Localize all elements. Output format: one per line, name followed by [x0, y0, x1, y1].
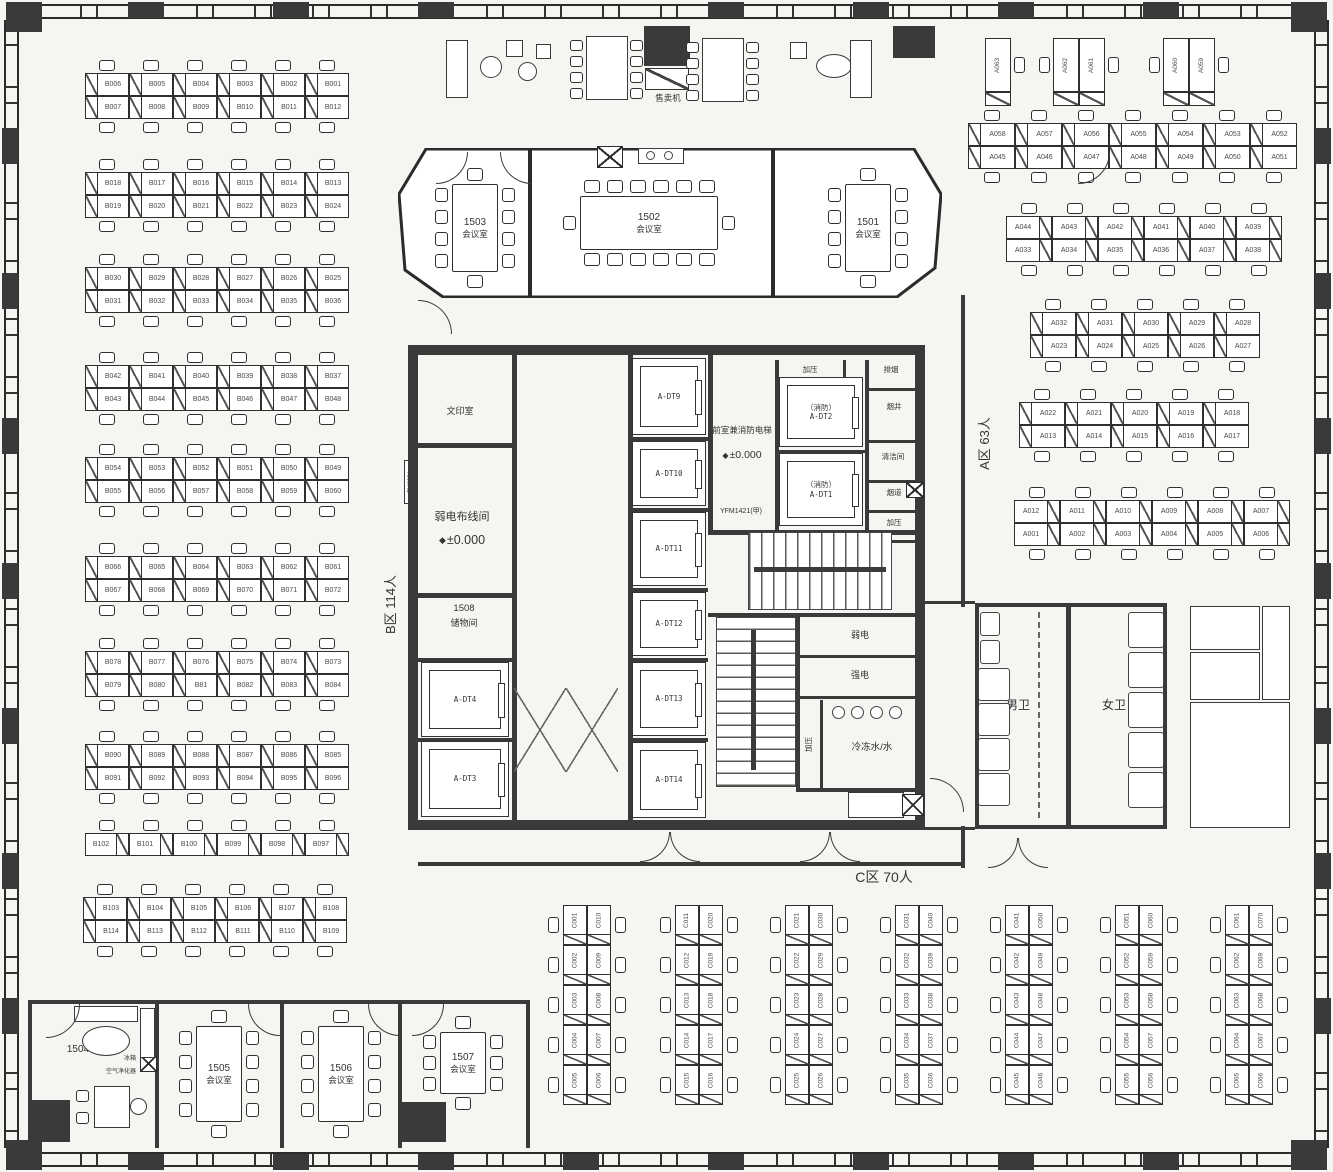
desk: A050	[1203, 146, 1250, 169]
chair	[1167, 487, 1183, 498]
desk: B063	[217, 556, 261, 579]
desk-label: B005	[142, 74, 172, 95]
pipe-circle	[870, 706, 883, 719]
desk-label: A059	[1199, 57, 1206, 72]
desk-label: B082	[230, 675, 260, 696]
desk: A021	[1065, 402, 1111, 425]
desk-cabinet-hatch	[1116, 934, 1138, 944]
desk-cabinet-hatch	[216, 898, 228, 919]
meeting-room-number: 1501	[857, 217, 879, 228]
desk: B076	[173, 651, 217, 674]
smoke-exhaust-box	[848, 792, 904, 818]
elevator-id: A-DT1	[810, 490, 833, 499]
desk-cabinet-hatch	[306, 74, 318, 95]
chair	[1277, 957, 1288, 973]
desk-cabinet-hatch	[130, 196, 142, 217]
chair	[231, 543, 247, 554]
desk: B101	[129, 833, 173, 856]
desk-cabinet-hatch	[676, 1054, 698, 1064]
desk-cabinet-hatch	[1116, 974, 1138, 984]
desk-cabinet-hatch	[810, 1094, 832, 1104]
desk-label: B091	[98, 768, 128, 789]
chair	[947, 957, 958, 973]
column-block	[2, 273, 18, 309]
desk-label: C023	[793, 992, 800, 1008]
desk: C045	[1005, 1065, 1029, 1105]
chair	[187, 414, 203, 425]
desk: B056	[129, 480, 173, 503]
chair	[319, 60, 335, 71]
chair	[630, 180, 646, 193]
desk-cabinet-hatch	[160, 834, 172, 855]
wall	[800, 696, 918, 699]
chair	[99, 506, 115, 517]
zone-b-label: B区 114人	[378, 548, 400, 660]
elevator-id: A-DT14	[655, 775, 682, 784]
desk-label: B086	[274, 745, 304, 766]
desk-label: B023	[274, 196, 304, 217]
desk-label: C041	[1013, 912, 1020, 928]
desk-label: B066	[98, 557, 128, 578]
desk-cabinet-hatch	[896, 974, 918, 984]
desk: B035	[261, 290, 305, 313]
desk-cabinet-hatch	[1158, 426, 1170, 447]
desk-cabinet-hatch	[1085, 217, 1097, 238]
wall	[865, 440, 922, 443]
desk: C057	[1139, 1025, 1163, 1065]
desk-label: C014	[683, 1032, 690, 1048]
hatch-box	[902, 794, 924, 816]
desk: C068	[1249, 985, 1273, 1025]
desk-cabinet-hatch	[1053, 92, 1079, 106]
hatch-box	[906, 482, 924, 498]
desk-cabinet-hatch	[306, 768, 318, 789]
chair	[727, 1077, 738, 1093]
column-block	[853, 1154, 889, 1170]
desk: C063	[1225, 985, 1249, 1025]
desk-cabinet-hatch	[260, 898, 272, 919]
desk-cabinet-hatch	[262, 580, 274, 601]
desk-cabinet-hatch	[174, 97, 186, 118]
desk-cabinet-hatch	[1139, 501, 1151, 522]
desk-label: B040	[186, 366, 216, 387]
desk-label: B067	[98, 580, 128, 601]
desk-cabinet-hatch	[306, 268, 318, 289]
chair	[231, 352, 247, 363]
chilled-water-label: 冷冻水/水	[828, 740, 916, 756]
desk-cabinet-hatch	[306, 196, 318, 217]
desk: C036	[919, 1065, 943, 1105]
chair	[467, 168, 483, 181]
column-block	[1315, 998, 1331, 1034]
elevator-counterweight	[695, 610, 702, 639]
door-arc	[418, 300, 452, 334]
stall-partition	[1038, 612, 1040, 818]
elevator-cab: A-DT10	[640, 449, 698, 498]
chair	[99, 316, 115, 327]
chair	[319, 221, 335, 232]
chair	[615, 997, 626, 1013]
stair-handrail	[751, 630, 756, 770]
desk-label: B022	[230, 196, 260, 217]
chair	[1039, 57, 1050, 73]
chair	[231, 820, 247, 831]
desk-label: B018	[98, 173, 128, 194]
chair	[231, 638, 247, 649]
desk-label: C009	[595, 952, 602, 968]
desk-label: B032	[142, 291, 172, 312]
chair	[1078, 110, 1094, 121]
chair	[99, 793, 115, 804]
chair	[660, 1077, 671, 1093]
pipe-circle	[832, 706, 845, 719]
desk: A039	[1236, 216, 1282, 239]
desk-cabinet-hatch	[1204, 403, 1216, 424]
desk-cabinet-hatch	[128, 898, 140, 919]
desk: B018	[85, 172, 129, 195]
desk-cabinet-hatch	[588, 974, 610, 984]
desk: A022	[1019, 402, 1065, 425]
desk-cabinet-hatch	[174, 366, 186, 387]
chair	[1149, 57, 1160, 73]
chair	[231, 731, 247, 742]
desk-label: A046	[1028, 147, 1061, 168]
chair	[179, 1055, 192, 1069]
wall	[418, 862, 965, 866]
desk: C018	[699, 985, 723, 1025]
chair	[99, 700, 115, 711]
desk-label: C068	[1257, 992, 1264, 1008]
desk-label: C057	[1147, 1032, 1154, 1048]
desk-label: A029	[1181, 313, 1213, 334]
desk-label: C070	[1257, 912, 1264, 928]
chair	[368, 1031, 381, 1045]
desk: B066	[85, 556, 129, 579]
door-arc	[640, 832, 670, 862]
chair	[1125, 110, 1141, 121]
chair	[607, 180, 623, 193]
desk-label: B107	[272, 898, 302, 919]
desk-label: A035	[1099, 240, 1131, 261]
desk: A012	[1014, 500, 1060, 523]
desk-cabinet-hatch	[174, 481, 186, 502]
desk-cabinet-hatch	[564, 1094, 586, 1104]
chair	[301, 1103, 314, 1117]
desk-label: A052	[1263, 124, 1296, 145]
desk: A056	[1062, 123, 1109, 146]
desk-cabinet-hatch	[1250, 1054, 1272, 1064]
desk: B108	[303, 897, 347, 920]
desk-cabinet-hatch	[1016, 147, 1028, 168]
elevator-cab: （消防）A-DT2	[787, 385, 855, 439]
desk-cabinet-hatch	[1250, 974, 1272, 984]
desk-cabinet-hatch	[306, 481, 318, 502]
meeting-room-type: 会议室	[328, 1074, 354, 1086]
desk: B105	[171, 897, 215, 920]
desk-label: C047	[1037, 1032, 1044, 1048]
chair	[1100, 917, 1111, 933]
chair	[895, 254, 908, 268]
chair	[630, 88, 643, 99]
chair	[319, 543, 335, 554]
chair	[770, 1037, 781, 1053]
chair	[275, 700, 291, 711]
chair	[185, 946, 201, 957]
desk-cabinet-hatch	[174, 196, 186, 217]
desk-label: B071	[274, 580, 304, 601]
desk-cabinet-hatch	[1006, 974, 1028, 984]
desk: B099	[217, 833, 261, 856]
desk-cabinet-hatch	[262, 557, 274, 578]
chair	[143, 221, 159, 232]
column-block	[2, 998, 18, 1034]
chair	[660, 957, 671, 973]
desk: B092	[129, 767, 173, 790]
desk: B023	[261, 195, 305, 218]
desk-label: C051	[1123, 912, 1130, 928]
desk-label: B041	[142, 366, 172, 387]
desk-label: C033	[903, 992, 910, 1008]
desk-cabinet-hatch	[1204, 147, 1216, 168]
desk-label: B006	[98, 74, 128, 95]
lv-level-label: ◆±0.000	[416, 532, 508, 549]
chair	[770, 997, 781, 1013]
chair	[179, 1103, 192, 1117]
desk-cabinet-hatch	[130, 97, 142, 118]
column-block	[1143, 1154, 1179, 1170]
chair	[99, 122, 115, 133]
desk-cabinet-hatch	[1047, 524, 1059, 545]
desk: B106	[215, 897, 259, 920]
chair	[984, 172, 1000, 183]
desk: B015	[217, 172, 261, 195]
desk-label: B008	[142, 97, 172, 118]
chair	[1218, 57, 1229, 73]
desk-label: A023	[1043, 336, 1075, 357]
desk-cabinet-hatch	[130, 481, 142, 502]
desk-label: A034	[1053, 240, 1085, 261]
chair	[229, 946, 245, 957]
chair	[1213, 487, 1229, 498]
chair	[1159, 265, 1175, 276]
desk-label: A009	[1153, 501, 1185, 522]
desk-cabinet-hatch	[248, 834, 260, 855]
desk: C017	[699, 1025, 723, 1065]
chair	[319, 793, 335, 804]
desk: B041	[129, 365, 173, 388]
chair	[947, 1077, 958, 1093]
shaft-pressure-top-label: 加压	[782, 362, 838, 378]
desk-cabinet-hatch	[218, 580, 230, 601]
desk: B029	[129, 267, 173, 290]
desk: A051	[1250, 146, 1297, 169]
desk-cabinet-hatch	[306, 458, 318, 479]
desk-label: B036	[318, 291, 348, 312]
desk-label: B046	[230, 389, 260, 410]
desk-label: B113	[140, 921, 170, 942]
desk: A052	[1250, 123, 1297, 146]
desk: B033	[173, 290, 217, 313]
desk-label: B011	[274, 97, 304, 118]
desk-label: C019	[707, 952, 714, 968]
chair	[143, 414, 159, 425]
door-arc	[988, 838, 1018, 868]
desk-cabinet-hatch	[130, 74, 142, 95]
chair	[984, 110, 1000, 121]
lounge-chair	[536, 44, 551, 59]
desk: B075	[217, 651, 261, 674]
desk-cabinet-hatch	[174, 74, 186, 95]
chair	[676, 253, 692, 266]
desk: C033	[895, 985, 919, 1025]
chair	[99, 414, 115, 425]
desk-label: B028	[186, 268, 216, 289]
storage-id-label: 1508	[424, 602, 504, 616]
chair	[143, 638, 159, 649]
desk-label: B035	[274, 291, 304, 312]
desk-label: C037	[927, 1032, 934, 1048]
desk-label: A041	[1145, 217, 1177, 238]
desk: B071	[261, 579, 305, 602]
fresh-air-room	[1190, 702, 1290, 828]
column-block	[893, 26, 935, 58]
chair	[143, 506, 159, 517]
wall	[925, 601, 975, 604]
chair	[435, 188, 448, 202]
desk: A053	[1203, 123, 1250, 146]
desk-label: B031	[98, 291, 128, 312]
desk-cabinet-hatch	[262, 97, 274, 118]
meeting-room-number: 1505	[208, 1063, 230, 1074]
chair	[1126, 389, 1142, 400]
chair	[653, 253, 669, 266]
elevator-counterweight	[695, 380, 702, 415]
chair	[947, 997, 958, 1013]
desk: A020	[1111, 402, 1157, 425]
chair	[548, 1037, 559, 1053]
desk: C038	[919, 985, 943, 1025]
chair	[231, 60, 247, 71]
desk-label: A045	[981, 147, 1014, 168]
desk-cabinet-hatch	[1231, 524, 1243, 545]
chair	[231, 316, 247, 327]
elevator-cab: A-DT12	[640, 600, 698, 648]
desk-cabinet-hatch	[86, 557, 98, 578]
desk: B091	[85, 767, 129, 790]
desk-label: B070	[230, 580, 260, 601]
chair	[435, 232, 448, 246]
desk: A055	[1109, 123, 1156, 146]
chair	[187, 444, 203, 455]
chair	[187, 122, 203, 133]
desk: B089	[129, 744, 173, 767]
hatch-box	[597, 146, 623, 168]
chair	[1113, 203, 1129, 214]
chair	[141, 884, 157, 895]
desk-cabinet-hatch	[1020, 426, 1032, 447]
desk: B016	[173, 172, 217, 195]
chair	[187, 605, 203, 616]
chair	[275, 414, 291, 425]
desk: C029	[809, 945, 833, 985]
desk: B004	[173, 73, 217, 96]
desk: B077	[129, 651, 173, 674]
desk: B102	[85, 833, 129, 856]
desk-label: A038	[1237, 240, 1269, 261]
meeting-room-number: 1503	[464, 217, 486, 228]
meeting-table: 1506会议室	[318, 1026, 364, 1122]
desk-cabinet-hatch	[306, 389, 318, 410]
chair	[990, 1037, 1001, 1053]
toilet-stall	[1128, 772, 1164, 808]
desk-cabinet-hatch	[174, 580, 186, 601]
desk-label: B002	[274, 74, 304, 95]
desk-cabinet-hatch	[1185, 501, 1197, 522]
stair-lower	[716, 617, 796, 787]
desk-label: B098	[262, 834, 292, 855]
elevator: A-DT10	[632, 441, 706, 506]
desk-cabinet-hatch	[786, 974, 808, 984]
desk-label: B030	[98, 268, 128, 289]
chair	[837, 1077, 848, 1093]
column-block	[2, 128, 18, 164]
desk-label: A031	[1089, 313, 1121, 334]
desk-label: C046	[1037, 1072, 1044, 1088]
chair	[1172, 172, 1188, 183]
chair	[99, 221, 115, 232]
desk-cabinet-hatch	[218, 768, 230, 789]
desk-cabinet-hatch	[1177, 217, 1189, 238]
desk-cabinet-hatch	[306, 675, 318, 696]
chair	[1067, 265, 1083, 276]
desk-cabinet-hatch	[172, 921, 184, 942]
column-block	[273, 2, 309, 18]
desk: B109	[303, 920, 347, 943]
desk-cabinet-hatch	[1140, 1054, 1162, 1064]
desk: C015	[675, 1065, 699, 1105]
desk-label: B111	[228, 921, 258, 942]
desk-cabinet-hatch	[1116, 1014, 1138, 1024]
fire-lobby-level: ◆±0.000	[709, 448, 775, 463]
chair	[699, 180, 715, 193]
column-block	[853, 2, 889, 18]
desk: B084	[305, 674, 349, 697]
elevator-counterweight	[695, 764, 702, 799]
desk: B053	[129, 457, 173, 480]
desk: B100	[173, 833, 217, 856]
chair	[1031, 172, 1047, 183]
desk-chair	[130, 1098, 147, 1115]
chair	[660, 997, 671, 1013]
desk-cabinet-hatch	[786, 1094, 808, 1104]
desk-cabinet-hatch	[1079, 92, 1105, 106]
desk-label: C007	[595, 1032, 602, 1048]
column-block	[563, 1154, 599, 1170]
meeting-room-number: 1507	[452, 1052, 474, 1063]
toilet-stall	[1128, 652, 1164, 688]
desk-cabinet-hatch	[1269, 217, 1281, 238]
chair	[1067, 203, 1083, 214]
desk-cabinet-hatch	[174, 675, 186, 696]
urinal	[980, 612, 1000, 636]
desk-cabinet-hatch	[1063, 124, 1075, 145]
desk-cabinet-hatch	[1223, 240, 1235, 261]
column-block	[1315, 853, 1331, 889]
fire-lobby-label: 前室兼消防电梯	[709, 416, 775, 446]
chair	[1259, 549, 1275, 560]
desk-cabinet-hatch	[588, 934, 610, 944]
chair	[1100, 997, 1111, 1013]
